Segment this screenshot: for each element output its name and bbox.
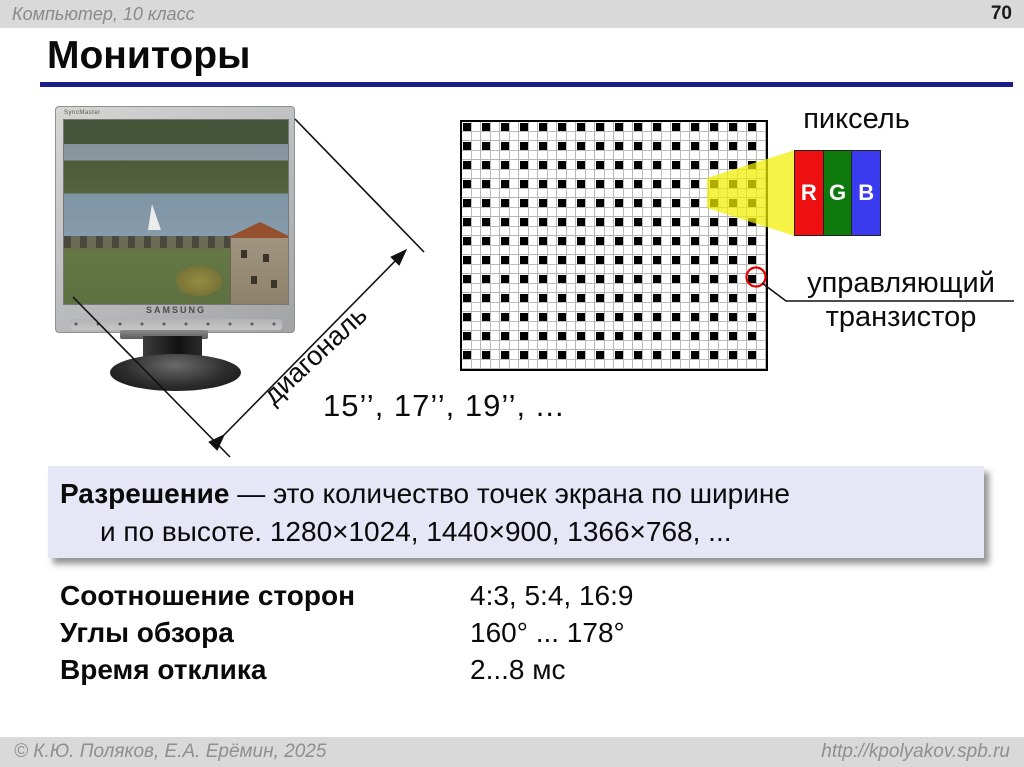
- pixel-cell: [709, 312, 728, 331]
- pixel-cell: [709, 160, 728, 179]
- spec-label-viewing-angles: Углы обзора: [60, 617, 470, 649]
- pixel-cell: [557, 274, 576, 293]
- pixel-cell: [709, 293, 728, 312]
- pixel-cell: [500, 255, 519, 274]
- pixel-cell: [690, 331, 709, 350]
- green-subpixel-letter: G: [829, 180, 846, 206]
- monitor-screen-photo: [63, 119, 289, 305]
- autumn-tree: [176, 266, 222, 296]
- pixel-cell: [538, 141, 557, 160]
- pixel-cell: [709, 274, 728, 293]
- pixel-cell: [633, 236, 652, 255]
- page-number: 70: [991, 3, 1012, 25]
- pixel-cell: [595, 160, 614, 179]
- pixel-cell: [747, 141, 766, 160]
- pixel-cell: [633, 293, 652, 312]
- pixel-cell: [519, 160, 538, 179]
- pixel-cell: [747, 293, 766, 312]
- pixel-cell: [576, 274, 595, 293]
- pixel-cell: [462, 122, 481, 141]
- pixel-cell: [690, 293, 709, 312]
- pixel-cell: [690, 160, 709, 179]
- pixel-cell: [538, 331, 557, 350]
- pixel-cell: [462, 274, 481, 293]
- pixel-cell: [728, 179, 747, 198]
- pixel-cell: [633, 312, 652, 331]
- pixel-cell: [481, 141, 500, 160]
- pixel-label: пиксель: [784, 103, 929, 136]
- pixel-cell: [652, 179, 671, 198]
- monitor-brand-label: SAMSUNG: [56, 305, 296, 315]
- spec-value-response-time: 2...8 мс: [470, 654, 760, 686]
- pixel-cell: [500, 122, 519, 141]
- pixel-cell: [462, 350, 481, 369]
- pixel-cell: [557, 198, 576, 217]
- pixel-cell: [728, 236, 747, 255]
- pixel-cell: [557, 122, 576, 141]
- pixel-cell: [576, 160, 595, 179]
- pixel-cell: [728, 312, 747, 331]
- pixel-cell: [595, 179, 614, 198]
- pixel-cell: [747, 179, 766, 198]
- pixel-cell: [538, 179, 557, 198]
- pixel-cell: [538, 255, 557, 274]
- pixel-cell: [500, 217, 519, 236]
- spec-label-aspect-ratio: Соотношение сторон: [60, 580, 470, 612]
- pixel-cell: [481, 255, 500, 274]
- pixel-cell: [633, 122, 652, 141]
- pixel-cell: [614, 255, 633, 274]
- pixel-cell: [671, 160, 690, 179]
- pixel-cell: [557, 350, 576, 369]
- pixel-cell: [671, 293, 690, 312]
- pixel-cell: [652, 141, 671, 160]
- pixel-cell: [614, 217, 633, 236]
- pixel-cell: [557, 312, 576, 331]
- pixel-cell: [671, 141, 690, 160]
- pixel-cell: [747, 255, 766, 274]
- pixel-cell: [671, 331, 690, 350]
- pixel-cell: [671, 236, 690, 255]
- pixel-cell: [633, 350, 652, 369]
- pixel-cell: [576, 331, 595, 350]
- pixel-cell: [538, 236, 557, 255]
- pixel-cell: [747, 312, 766, 331]
- diagonal-extension-top: [295, 119, 424, 252]
- pixel-cell: [557, 160, 576, 179]
- pixel-cell: [671, 274, 690, 293]
- pixel-cell: [595, 293, 614, 312]
- pixel-cell: [557, 179, 576, 198]
- pixel-cell: [633, 217, 652, 236]
- pixel-cell: [481, 331, 500, 350]
- footer-bar: © К.Ю. Поляков, Е.А. Ерёмин, 2025 http:/…: [0, 737, 1024, 767]
- pixel-cell: [709, 331, 728, 350]
- pixel-cell: [709, 198, 728, 217]
- pixel-cell: [652, 122, 671, 141]
- pixel-cell: [557, 293, 576, 312]
- pixel-cell: [728, 255, 747, 274]
- pixel-cell: [462, 179, 481, 198]
- pixel-cell: [595, 331, 614, 350]
- pixel-cell: [690, 236, 709, 255]
- pixel-cell: [747, 274, 766, 293]
- pixel-cell: [576, 217, 595, 236]
- pixel-cell: [595, 198, 614, 217]
- pixel-cell: [481, 236, 500, 255]
- pixel-cell: [671, 217, 690, 236]
- pixel-cell: [500, 141, 519, 160]
- pixel-cell: [614, 293, 633, 312]
- pixel-cell: [747, 331, 766, 350]
- pixel-cell: [652, 293, 671, 312]
- pixel-cell: [614, 198, 633, 217]
- pixel-cell: [519, 255, 538, 274]
- pixel-cell: [595, 122, 614, 141]
- pixel-cell: [519, 198, 538, 217]
- pixel-cell: [462, 160, 481, 179]
- pixel-cell: [519, 331, 538, 350]
- red-subpixel-letter: R: [801, 180, 817, 206]
- pixel-cell: [671, 198, 690, 217]
- pixel-cell: [614, 350, 633, 369]
- pixel-cell: [538, 293, 557, 312]
- pixel-cell: [576, 198, 595, 217]
- pixel-cell: [500, 312, 519, 331]
- pixel-cell: [538, 160, 557, 179]
- pixel-cell: [747, 122, 766, 141]
- pixel-cell: [576, 236, 595, 255]
- pixel-cell: [709, 141, 728, 160]
- course-label: Компьютер, 10 класс: [12, 4, 195, 25]
- pixel-cell: [595, 255, 614, 274]
- pixel-cell: [633, 160, 652, 179]
- pixel-cell: [671, 350, 690, 369]
- pixel-cell: [690, 350, 709, 369]
- pixel-cell: [595, 274, 614, 293]
- pixel-cell: [690, 179, 709, 198]
- spec-value-viewing-angles: 160° ... 178°: [470, 617, 760, 649]
- pixel-cell: [557, 331, 576, 350]
- pixel-cell: [728, 274, 747, 293]
- red-subpixel: R: [795, 151, 824, 235]
- diagonal-sizes-label: 15’’, 17’’, 19’’, ...: [323, 388, 565, 424]
- pixel-cell: [576, 255, 595, 274]
- pixel-cell: [538, 274, 557, 293]
- resolution-term: Разрешение: [60, 478, 229, 509]
- sailboat: [148, 204, 161, 230]
- pixel-cell: [595, 141, 614, 160]
- pixel-cell: [519, 274, 538, 293]
- website-url: http://kpolyakov.spb.ru: [821, 741, 1010, 763]
- pixel-cell: [614, 331, 633, 350]
- pixel-cell: [481, 179, 500, 198]
- pixel-cell: [481, 160, 500, 179]
- pixel-cell: [500, 179, 519, 198]
- pixel-cell: [652, 160, 671, 179]
- rgb-subpixels: R G B: [794, 150, 881, 236]
- copyright-label: © К.Ю. Поляков, Е.А. Ерёмин, 2025: [14, 741, 326, 763]
- resolution-line1: Разрешение — это количество точек экрана…: [60, 475, 972, 513]
- pixel-cell: [614, 160, 633, 179]
- resolution-definition-box: Разрешение — это количество точек экрана…: [48, 466, 984, 558]
- pixel-cell: [728, 122, 747, 141]
- blue-subpixel-letter: B: [858, 180, 874, 206]
- pixel-cell: [709, 350, 728, 369]
- pixel-cell: [728, 141, 747, 160]
- pixel-matrix: [460, 120, 768, 371]
- pixel-cell: [652, 312, 671, 331]
- pixel-cell: [462, 236, 481, 255]
- pixel-cell: [557, 255, 576, 274]
- resolution-definition: — это количество точек экрана по ширине: [229, 478, 790, 509]
- pixel-cell: [481, 293, 500, 312]
- header-bar: Компьютер, 10 класс 70: [0, 0, 1024, 28]
- pixel-cell: [500, 160, 519, 179]
- slide: Компьютер, 10 класс 70 Мониторы SyncMast…: [0, 0, 1024, 767]
- pixel-cell: [690, 198, 709, 217]
- transistor-label-line2: транзистор: [784, 300, 1018, 334]
- pixel-cell: [614, 312, 633, 331]
- pixel-cell: [557, 217, 576, 236]
- transistor-label: управляющий транзистор: [784, 266, 1018, 334]
- pixel-cell: [690, 255, 709, 274]
- pixel-cell: [747, 198, 766, 217]
- pixel-cell: [709, 179, 728, 198]
- pixel-cell: [671, 122, 690, 141]
- pixel-cell: [671, 255, 690, 274]
- pixel-cell: [728, 293, 747, 312]
- pixel-cell: [633, 331, 652, 350]
- blue-subpixel: B: [852, 151, 880, 235]
- specs-table: Соотношение сторон 4:3, 5:4, 16:9 Углы о…: [60, 580, 760, 686]
- pixel-cell: [500, 350, 519, 369]
- pixel-cell: [557, 141, 576, 160]
- pixel-cell: [595, 350, 614, 369]
- pixel-cell: [576, 350, 595, 369]
- spec-value-aspect-ratio: 4:3, 5:4, 16:9: [470, 580, 760, 612]
- pixel-cell: [690, 141, 709, 160]
- pixel-cell: [519, 236, 538, 255]
- pixel-cell: [709, 255, 728, 274]
- page-title: Мониторы: [47, 34, 250, 78]
- pixel-cell: [747, 236, 766, 255]
- pixel-cell: [614, 236, 633, 255]
- pixel-cell: [747, 217, 766, 236]
- pixel-cell: [538, 350, 557, 369]
- pixel-cell: [462, 141, 481, 160]
- pixel-cell: [500, 198, 519, 217]
- pixel-cell: [652, 255, 671, 274]
- pixel-cell: [728, 350, 747, 369]
- pixel-cell: [576, 293, 595, 312]
- pixel-cell: [519, 141, 538, 160]
- pixel-cell: [481, 122, 500, 141]
- pixel-cell: [614, 122, 633, 141]
- monitor-stand-base: [110, 354, 241, 391]
- pixel-cell: [462, 255, 481, 274]
- pixel-cell: [690, 274, 709, 293]
- pixel-cell: [633, 198, 652, 217]
- pixel-cell: [709, 217, 728, 236]
- pixel-cell: [462, 217, 481, 236]
- pixel-cell: [481, 312, 500, 331]
- pixel-cell: [519, 350, 538, 369]
- pixel-cell: [671, 179, 690, 198]
- pixel-cell: [652, 331, 671, 350]
- pixel-cell: [500, 274, 519, 293]
- pixel-cell: [462, 293, 481, 312]
- pixel-cell: [481, 350, 500, 369]
- pixel-cell: [709, 122, 728, 141]
- pixel-cell: [728, 217, 747, 236]
- pixel-cell: [538, 217, 557, 236]
- pixel-cell: [462, 331, 481, 350]
- pixel-cell: [595, 312, 614, 331]
- pixel-cell: [690, 217, 709, 236]
- pixel-cell: [500, 293, 519, 312]
- monitor-model-label: SyncMaster: [64, 110, 101, 116]
- pixel-cell: [481, 217, 500, 236]
- resolution-line2: и по высоте. 1280×1024, 1440×900, 1366×7…: [60, 513, 972, 551]
- pixel-cell: [652, 274, 671, 293]
- pixel-cell: [614, 274, 633, 293]
- pixel-cell: [595, 217, 614, 236]
- pixel-cell: [690, 122, 709, 141]
- pixel-cell: [462, 198, 481, 217]
- pixel-cell: [728, 160, 747, 179]
- pixel-cell: [481, 198, 500, 217]
- pixel-cell: [633, 274, 652, 293]
- pixel-cell: [481, 274, 500, 293]
- pixel-cell: [538, 312, 557, 331]
- pixel-cell: [500, 331, 519, 350]
- pixel-cell: [519, 122, 538, 141]
- pixel-cell: [595, 236, 614, 255]
- title-underline: [40, 82, 1013, 87]
- pixel-cell: [633, 141, 652, 160]
- pixel-cell: [652, 236, 671, 255]
- pixel-cell: [747, 350, 766, 369]
- pixel-cell: [709, 236, 728, 255]
- pixel-cell: [519, 312, 538, 331]
- transistor-label-line1: управляющий: [784, 266, 1018, 300]
- pixel-cell: [614, 179, 633, 198]
- monitor-buttons: [70, 319, 282, 330]
- pixel-cell: [519, 179, 538, 198]
- pixel-cell: [690, 312, 709, 331]
- pixel-cell: [557, 236, 576, 255]
- pixel-cell: [652, 198, 671, 217]
- pixel-cell: [652, 217, 671, 236]
- pixel-cell: [633, 179, 652, 198]
- pixel-cell: [576, 122, 595, 141]
- pixel-cell: [519, 217, 538, 236]
- pixel-cell: [519, 293, 538, 312]
- pixel-cell: [633, 255, 652, 274]
- monitor-bezel: SyncMaster SAMSUNG: [55, 106, 295, 333]
- spec-label-response-time: Время отклика: [60, 654, 470, 686]
- pixel-cell: [728, 198, 747, 217]
- pixel-cell: [462, 312, 481, 331]
- pixel-cell: [538, 198, 557, 217]
- pixel-cell: [728, 331, 747, 350]
- green-subpixel: G: [824, 151, 853, 235]
- monitor-illustration: SyncMaster SAMSUNG: [55, 106, 297, 392]
- pixel-cell: [576, 179, 595, 198]
- pixel-cell: [747, 160, 766, 179]
- pixel-cell: [652, 350, 671, 369]
- pixel-cell: [671, 312, 690, 331]
- pixel-cell: [576, 312, 595, 331]
- pixel-cell: [576, 141, 595, 160]
- pixel-cell: [614, 141, 633, 160]
- stone-tower: [230, 238, 288, 305]
- pixel-cell: [500, 236, 519, 255]
- pixel-cell: [538, 122, 557, 141]
